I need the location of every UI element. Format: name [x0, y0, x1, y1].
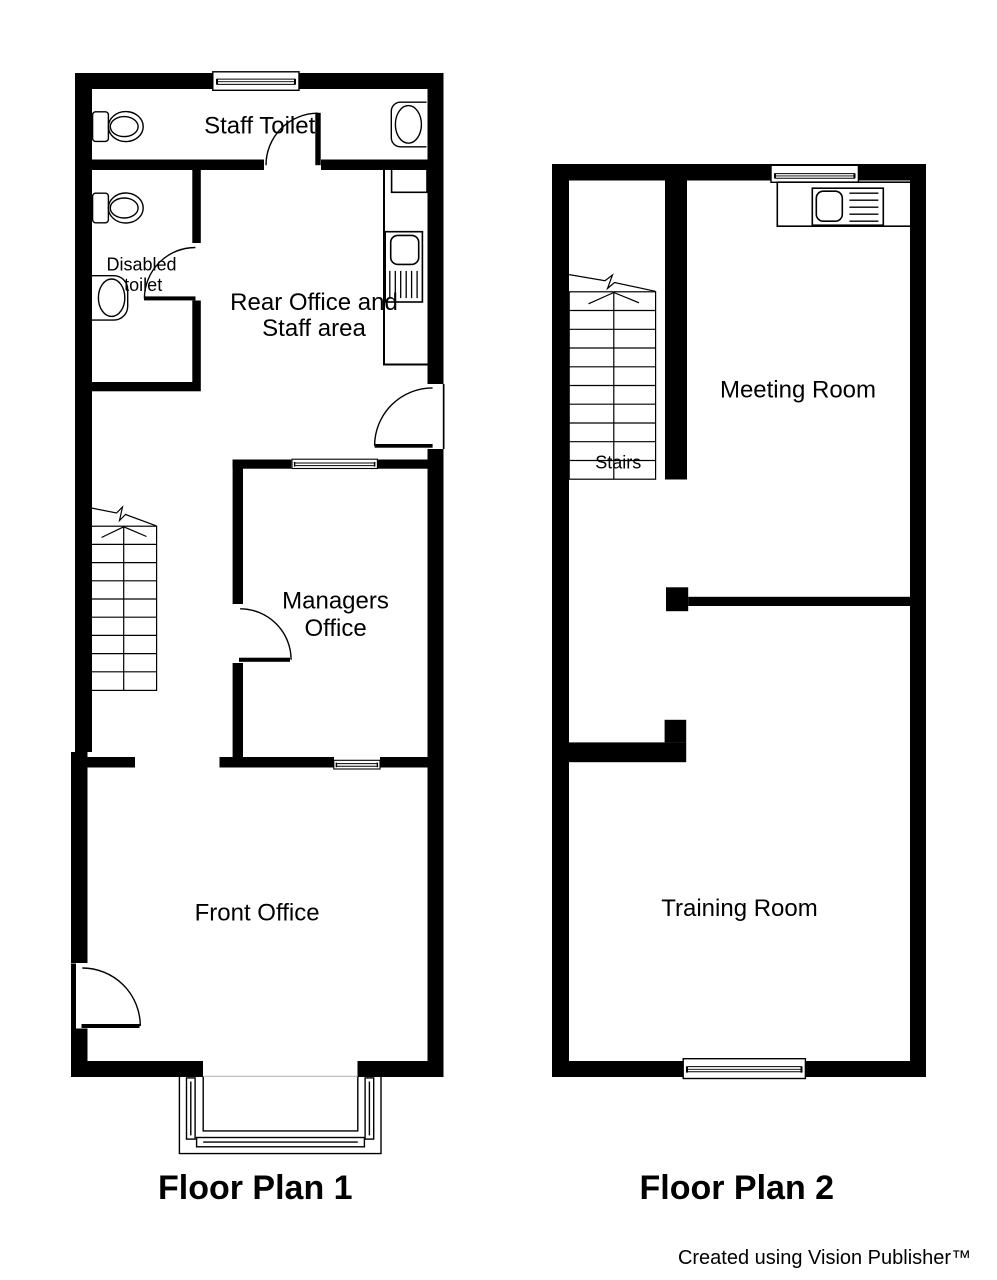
svg-text:Floor Plan 2: Floor Plan 2	[640, 1169, 835, 1207]
svg-text:Staff Toilet: Staff Toilet	[204, 113, 316, 140]
svg-text:Disabled: Disabled	[106, 255, 176, 275]
svg-text:Office: Office	[304, 615, 366, 642]
svg-text:Meeting Room: Meeting Room	[720, 377, 876, 404]
svg-text:Training Room: Training Room	[661, 895, 818, 922]
svg-text:Created using Vision Publisher: Created using Vision Publisher™	[678, 1247, 971, 1269]
svg-text:Rear Office and: Rear Office and	[230, 289, 398, 316]
svg-text:Stairs: Stairs	[595, 452, 641, 472]
svg-text:Front Office: Front Office	[195, 900, 320, 927]
svg-text:Staff area: Staff area	[262, 315, 366, 342]
svg-text:Managers: Managers	[282, 588, 389, 615]
svg-text:toilet: toilet	[124, 275, 162, 295]
svg-text:Floor Plan 1: Floor Plan 1	[158, 1169, 353, 1207]
